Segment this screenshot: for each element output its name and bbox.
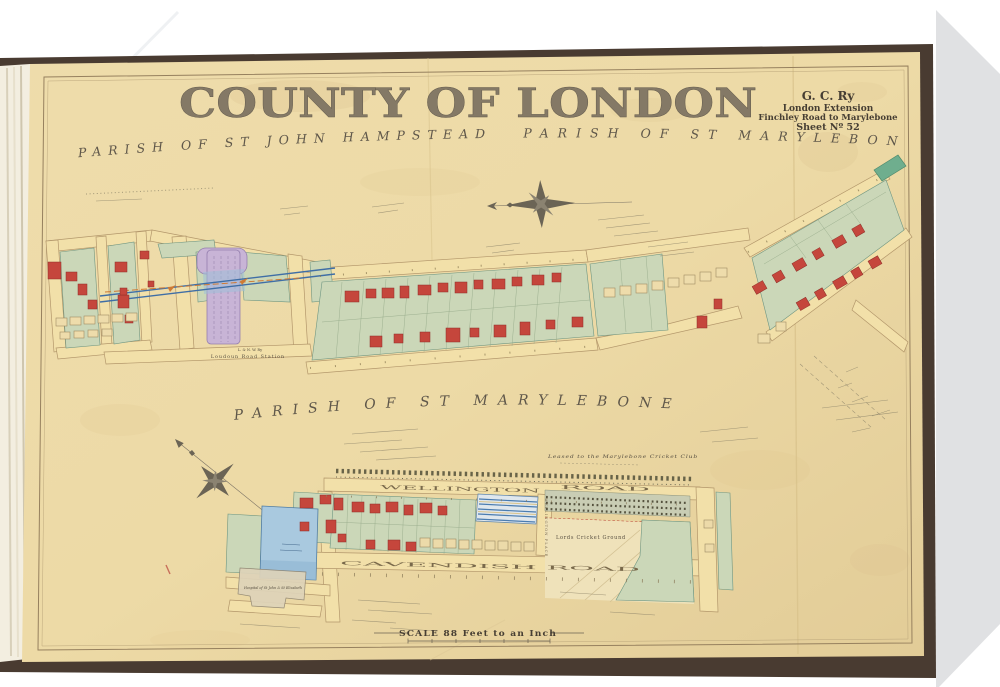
lords-label: Lords Cricket Ground: [556, 535, 626, 541]
hospital-label: Hospital of St John & St Elizabeth: [243, 586, 302, 590]
scale-label: SCALE 88 Feet to an Inch: [399, 628, 557, 638]
map-title: COUNTY OF LONDON: [179, 80, 757, 127]
wellington-place-label: WELLINGTON PLACE: [544, 498, 549, 557]
station-company-label: L. & N. W. Ry: [238, 348, 263, 352]
lords-cricket-ground: Lords Cricket Ground: [545, 490, 694, 604]
map-page: COUNTY OF LONDON G. C. Ry London Extensi…: [0, 0, 924, 662]
lease-note-label: Leased to the Marylebone Cricket Club: [547, 455, 698, 460]
photographed-map-plate: COUNTY OF LONDON G. C. Ry London Extensi…: [0, 0, 1000, 687]
railway-sidings: [476, 494, 538, 524]
mat-corner-right: [936, 10, 1000, 687]
cartouche-railway: G. C. Ry: [802, 89, 856, 103]
station-name-label: Loudoun Road Station: [211, 354, 285, 360]
